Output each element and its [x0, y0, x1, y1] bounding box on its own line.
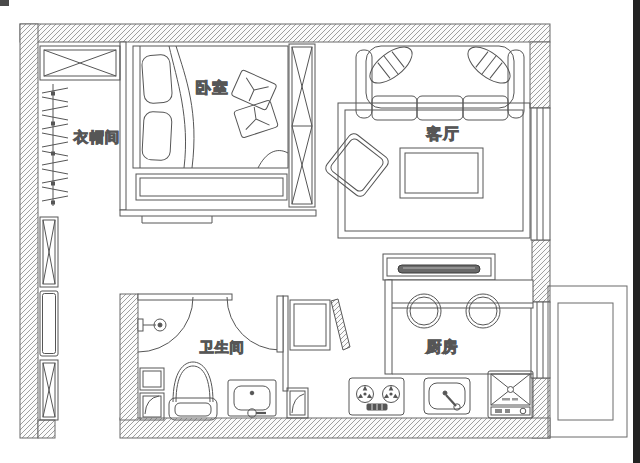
gas-stove: [349, 378, 404, 415]
window-living-room: [531, 108, 550, 240]
photo-edge-strip: [633, 0, 640, 463]
bed-quilt: [169, 46, 288, 168]
shoe-cabinet-lower: [40, 360, 58, 420]
shoe-cabinet-upper: [40, 217, 58, 287]
bedroom-label: 卧室: [196, 79, 229, 96]
bed-end-bench: [136, 174, 287, 200]
cloakroom-label: 衣帽间: [73, 129, 121, 145]
bathroom-sink: [228, 380, 276, 417]
shower-head: [138, 319, 166, 331]
bathroom: 卫生间: [138, 294, 288, 420]
balcony-platform: [548, 286, 627, 437]
bar-counter: [383, 254, 533, 374]
refrigerator: [290, 299, 350, 350]
bed-pillow: [141, 54, 172, 104]
bathroom-partition-wall: [283, 296, 288, 391]
kitchen-label: 厨房: [425, 338, 459, 355]
bathroom-label: 卫生间: [200, 339, 245, 355]
bed-cushion: [234, 100, 279, 138]
toilet: [169, 362, 217, 420]
bathroom-corner-cabinets: [140, 368, 164, 420]
bedroom-south-wall: [120, 210, 316, 216]
floor-plan-page: 衣帽间 卧: [0, 0, 640, 463]
window-kitchen: [531, 302, 550, 378]
wardrobe: [289, 44, 315, 207]
rug: [338, 103, 530, 238]
living-room-label: 客厅: [426, 125, 460, 142]
cloakroom-top-cabinet: [40, 46, 120, 80]
bed: [133, 46, 288, 168]
cloakroom: 衣帽间: [40, 42, 126, 210]
clothes-rail: [42, 84, 68, 206]
wall-top: [20, 24, 550, 42]
wall-bathroom-left: [120, 294, 138, 420]
cloakroom-partition-wall: [120, 42, 126, 210]
floor-plan-drawing: 衣帽间 卧: [0, 0, 640, 463]
sliding-door-track: [142, 216, 212, 223]
living-room: 客厅: [323, 40, 530, 238]
wall-right-upper: [530, 42, 550, 108]
wall-left: [20, 24, 38, 438]
coffee-table: [400, 148, 483, 198]
wall-right-mid: [532, 240, 550, 302]
washing-machine: [488, 371, 533, 418]
wall-left-foot: [38, 420, 55, 438]
refrigerator-open-door: [331, 299, 350, 350]
bed-cushion: [231, 69, 277, 110]
bed-pillow: [142, 111, 172, 160]
hallway-cabinet-open: [40, 291, 58, 356]
kitchen: 厨房: [287, 254, 533, 418]
sofa: [356, 40, 524, 120]
base-cabinet-small: [287, 388, 308, 418]
bedroom: 卧室: [120, 44, 316, 223]
photo-corner-artifact: [0, 0, 9, 6]
serving-tray: [398, 265, 480, 273]
bathroom-wall-top: [138, 294, 232, 300]
wall-bottom: [120, 418, 550, 438]
hallway-cabinets: [40, 217, 58, 420]
floor-cushion: [323, 131, 390, 198]
kitchen-sink: [424, 378, 470, 414]
